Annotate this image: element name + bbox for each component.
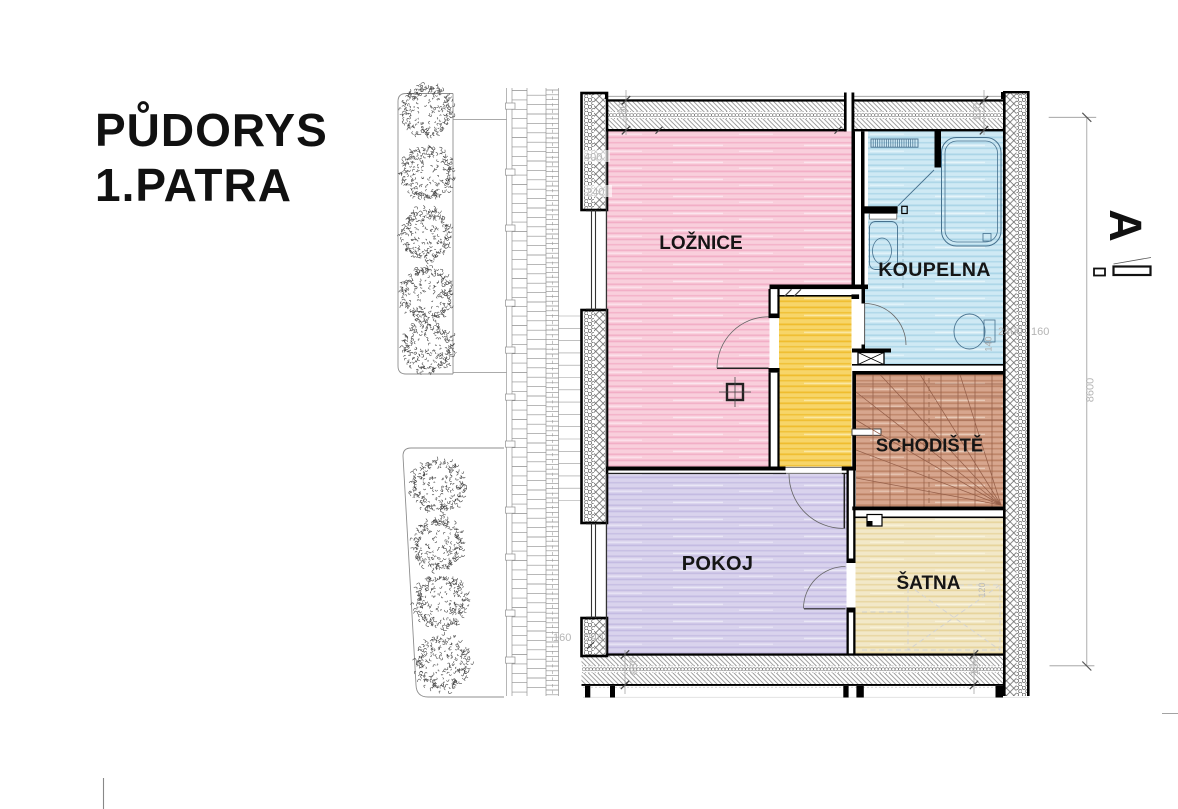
svg-text:480: 480 [628, 657, 640, 675]
svg-text:120: 120 [977, 582, 987, 597]
svg-text:POKOJ: POKOJ [682, 553, 754, 575]
svg-text:160: 160 [1031, 326, 1049, 338]
svg-text:1.PATRA: 1.PATRA [95, 159, 292, 211]
svg-text:ŠATNA: ŠATNA [896, 572, 960, 594]
svg-text:KOUPELNA: KOUPELNA [878, 259, 991, 281]
svg-text:140: 140 [984, 336, 994, 351]
svg-text:LOŽNICE: LOŽNICE [659, 232, 742, 254]
svg-text:480: 480 [617, 102, 629, 120]
svg-text:2400: 2400 [998, 326, 1022, 338]
svg-text:160: 160 [553, 632, 571, 644]
svg-text:PŮDORYS: PŮDORYS [95, 101, 328, 156]
svg-text:100: 100 [969, 657, 981, 675]
svg-text:100: 100 [972, 103, 984, 121]
svg-text:A: A [1100, 209, 1151, 242]
svg-text:SCHODIŠTĚ: SCHODIŠTĚ [876, 435, 983, 456]
svg-text:400: 400 [584, 152, 602, 164]
svg-text:240: 240 [586, 187, 604, 199]
svg-text:8600: 8600 [1085, 378, 1097, 402]
